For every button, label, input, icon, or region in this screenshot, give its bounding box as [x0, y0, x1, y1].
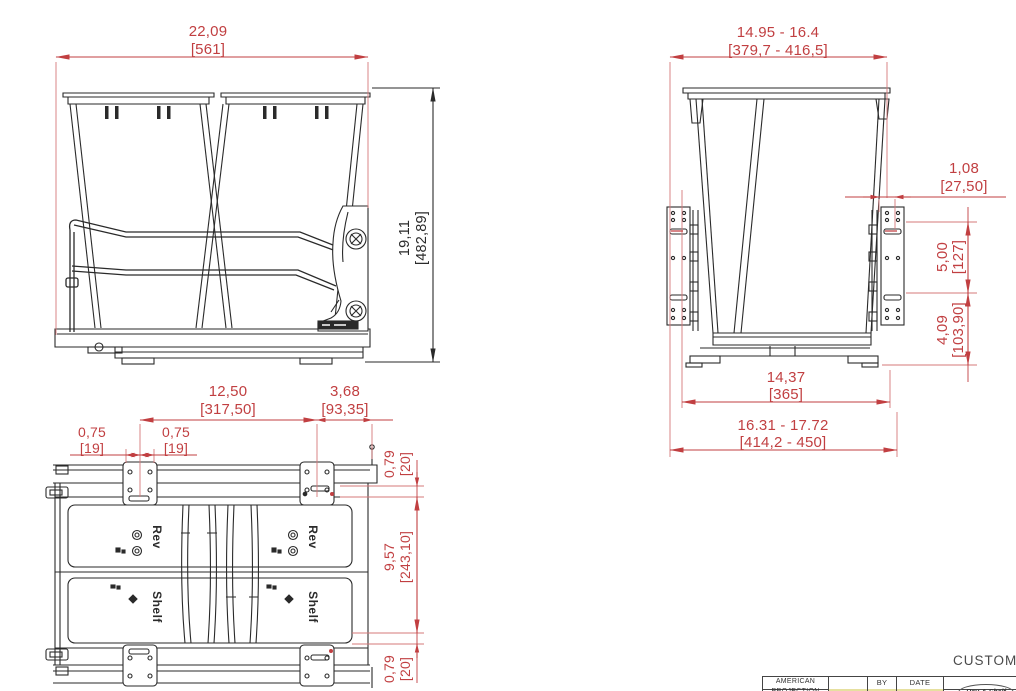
by-column-header: BY [868, 678, 896, 687]
plan-bracket-left-dim-inches: 0,75 [78, 424, 106, 440]
plan-edge-top-dim-mm: [20] [397, 452, 413, 476]
plan-edge-top-dim-inches: 0,79 [381, 450, 397, 478]
plan-center-tracks [181, 505, 258, 643]
front-width-dim-inches: 22,09 [189, 23, 228, 40]
title-block-top-border [762, 676, 1016, 677]
front-bin-edges [70, 104, 363, 328]
front-height-dim-mm: [482,89] [414, 211, 430, 265]
title-block-vline-5 [943, 676, 944, 691]
plan-mounting-brackets [123, 462, 334, 686]
side-mounting-plate-left [667, 207, 698, 331]
side-base-width-dim-inches: 14,37 [767, 369, 806, 386]
plan-base-pan [55, 483, 368, 665]
plan-bracket-right-dim-inches: 0,75 [162, 424, 190, 440]
title-block-vline-2 [828, 676, 829, 691]
projection-label-line1: AMERICAN [763, 678, 828, 685]
plan-slide-span-dim-mm: [317,50] [200, 401, 256, 418]
plan-brand-text-left-bottom: Shelf [150, 591, 164, 623]
side-view-drawing [667, 88, 904, 367]
front-door-bracket [318, 206, 368, 331]
plan-brand-text-left-top: Rev [150, 525, 164, 549]
side-bin [683, 88, 890, 367]
front-height-dim-inches: 19,11 [397, 220, 413, 256]
plan-slide-span-dim-inches: 12,50 [209, 383, 248, 400]
front-bin-rims [63, 93, 370, 104]
customer-label: CUSTOME [953, 653, 1016, 668]
plan-edge-bottom-dim-inches: 0,79 [381, 655, 397, 683]
technical-drawing-page: 22,09 [561] 19,11 [482,89] [0, 0, 1016, 691]
side-upper-height-dim-mm: [127] [950, 240, 967, 274]
plan-view-drawing [46, 445, 377, 688]
plan-depth-dim-mm: [243,10] [397, 531, 413, 583]
plan-rear-offset-dim-inches: 3,68 [330, 383, 360, 400]
plan-rear-offset-dim-mm: [93,35] [321, 401, 368, 418]
front-width-dim-mm: [561] [191, 41, 225, 58]
side-base-width-dim-mm: [365] [769, 386, 803, 403]
front-base-slide [55, 329, 370, 364]
plan-depth-dim-inches: 9,57 [381, 543, 397, 571]
side-mounting-plate-right [869, 207, 904, 331]
side-lower-height-dim-inches: 4,09 [934, 315, 951, 345]
plan-bracket-right-dim-mm: [19] [164, 440, 188, 456]
plan-bracket-left-dim-mm: [19] [80, 440, 104, 456]
plan-brand-text-right-bottom: Shelf [306, 591, 320, 623]
side-upper-height-dim-inches: 5,00 [934, 242, 951, 272]
projection-label-line2: PROJECTION [763, 688, 828, 691]
plan-brand-text-right-top: Rev [306, 525, 320, 549]
side-offset-dim-mm: [27,50] [940, 178, 987, 195]
side-top-width-dim-inches: 14.95 - 16.4 [737, 24, 819, 41]
plan-edge-bottom-dim-mm: [20] [397, 657, 413, 681]
front-view-drawing [55, 88, 440, 364]
drawing-svg: 22,09 [561] 19,11 [482,89] [0, 0, 1016, 691]
side-top-width-dim-mm: [379,7 - 416,5] [728, 42, 828, 59]
side-overall-width-dim-inches: 16.31 - 17.72 [737, 417, 828, 434]
side-offset-dim-inches: 1,08 [949, 160, 979, 177]
side-overall-width-dim-mm: [414,2 - 450] [740, 434, 827, 451]
side-lower-height-dim-mm: [103,90] [950, 302, 967, 358]
date-column-header: DATE [897, 678, 943, 687]
front-bin-handle-slots [105, 106, 329, 119]
